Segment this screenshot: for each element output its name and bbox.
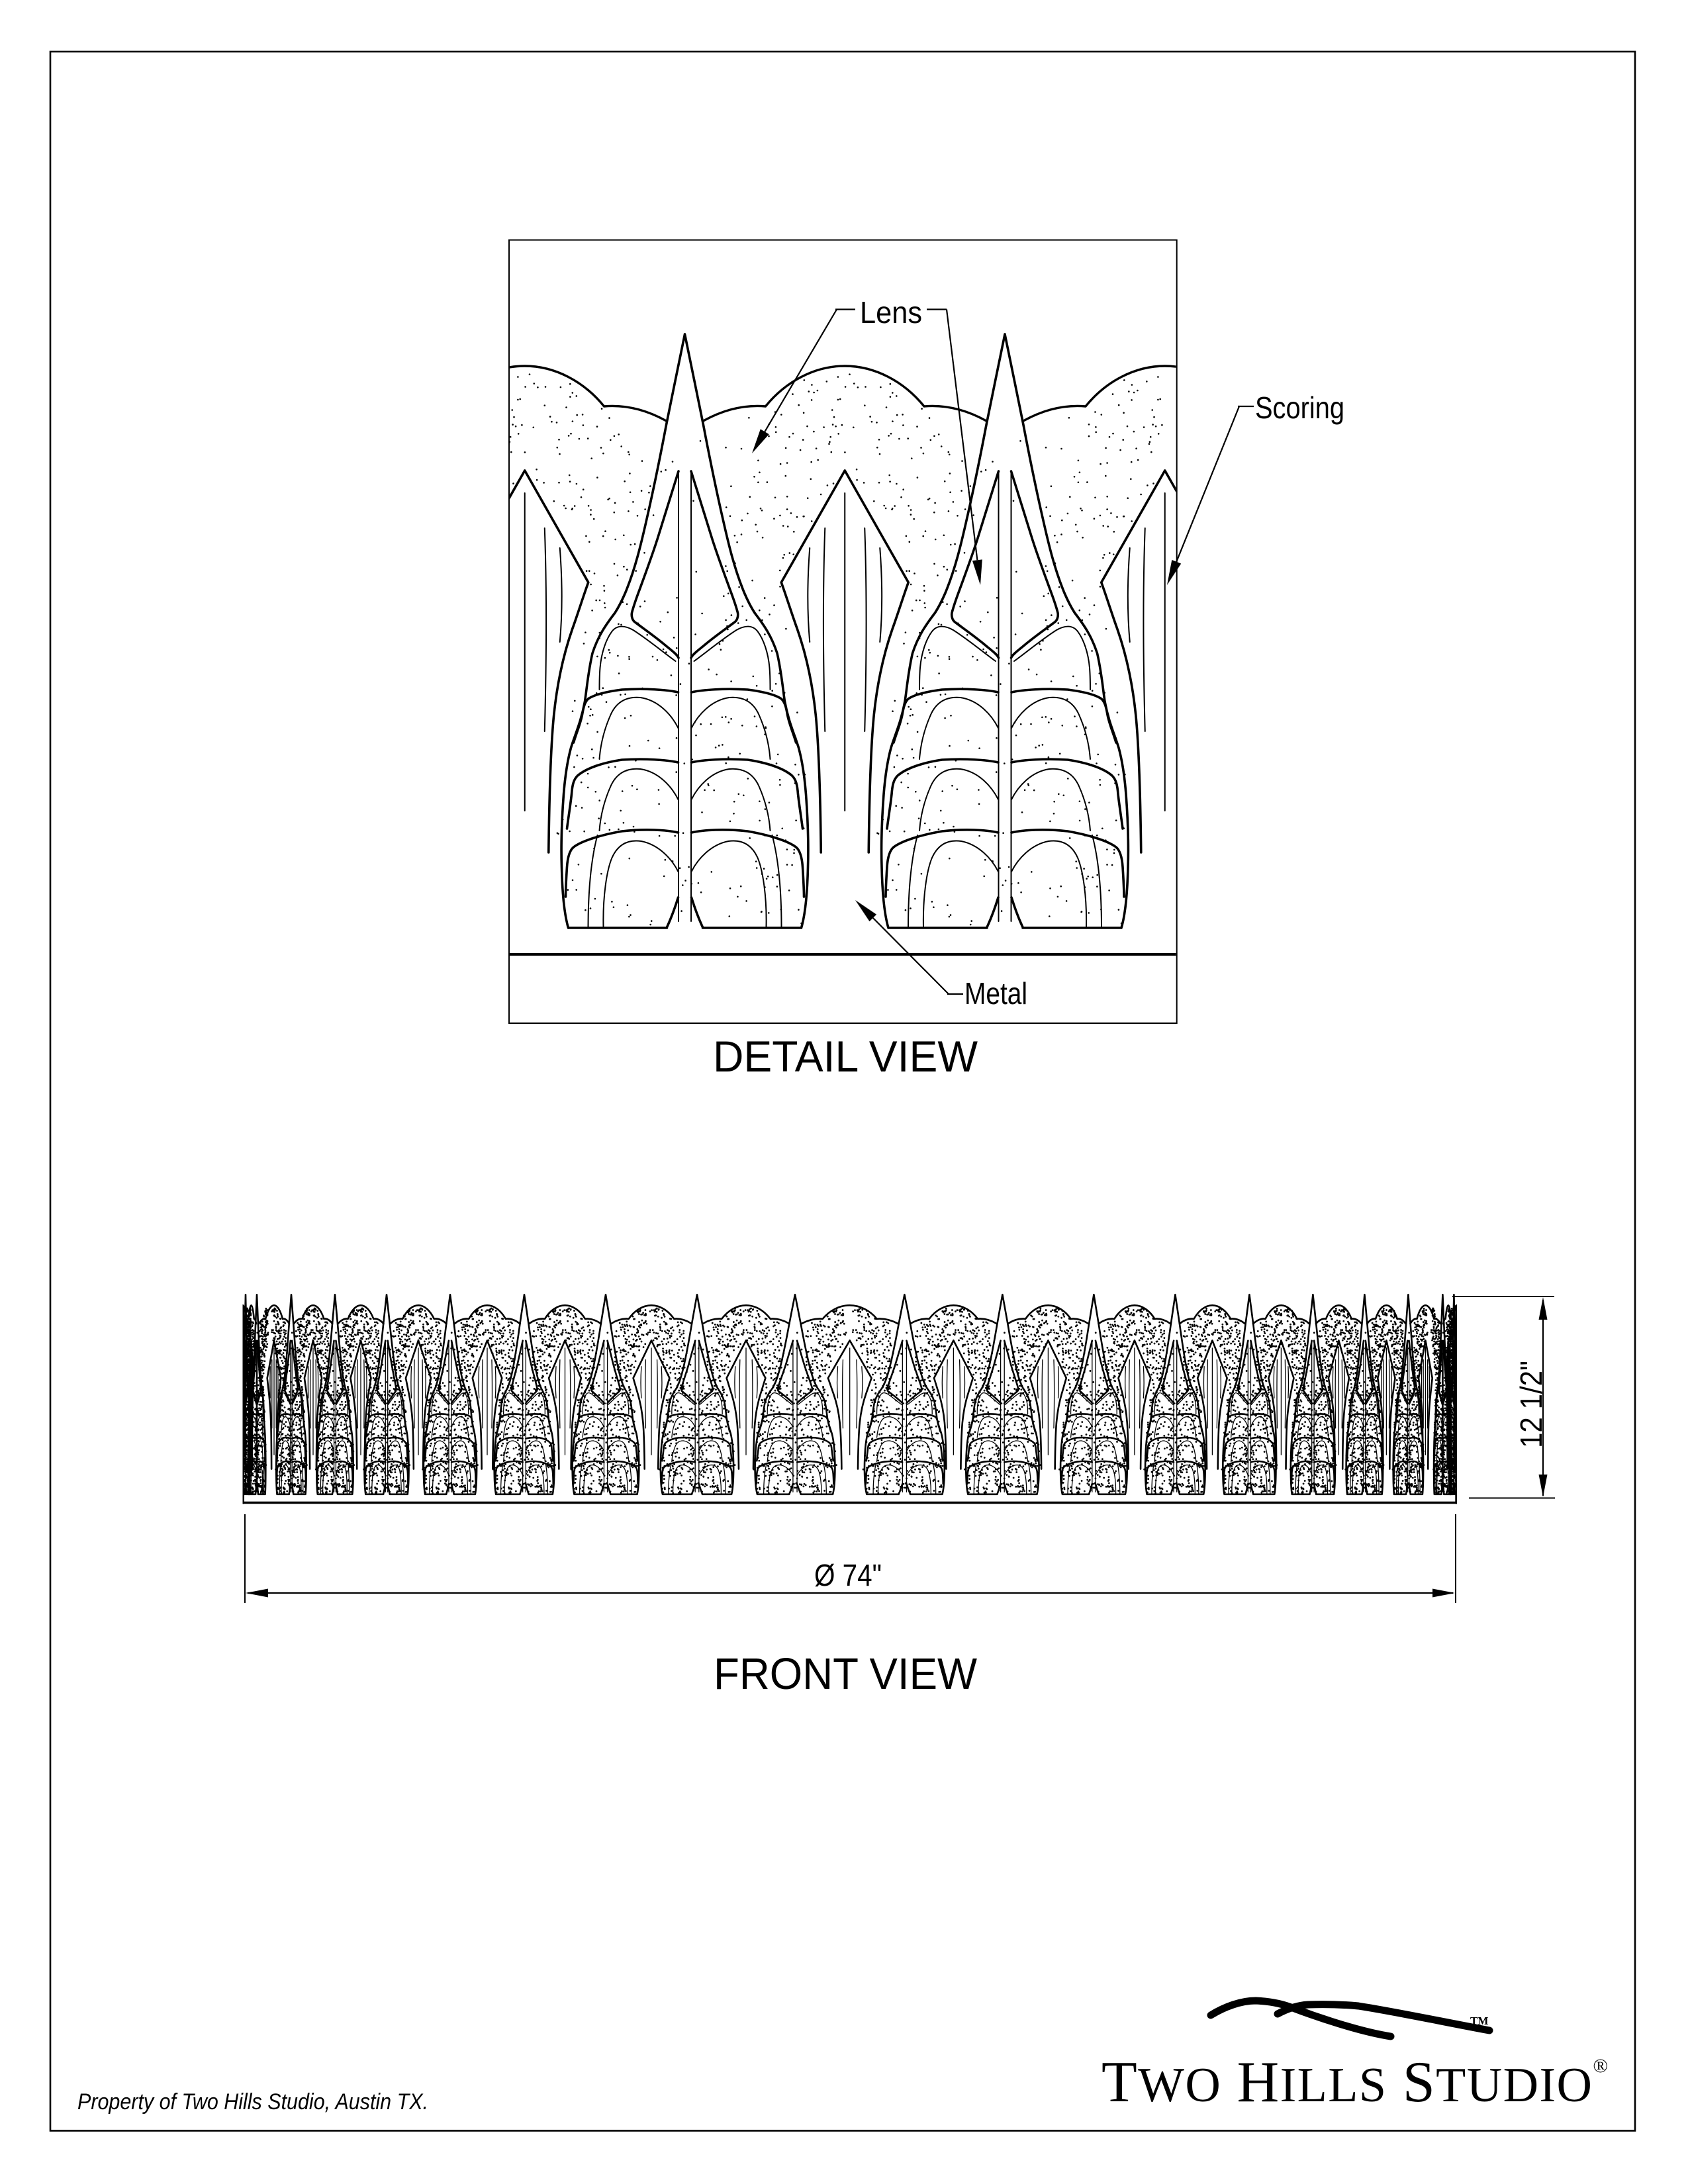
svg-text:DETAIL VIEW: DETAIL VIEW: [713, 1032, 978, 1081]
svg-text:TWO HILLS STUDIO®: TWO HILLS STUDIO®: [1102, 2050, 1609, 2115]
svg-text:12 1/2": 12 1/2": [1514, 1361, 1548, 1448]
svg-text:Ø 74": Ø 74": [814, 1558, 882, 1592]
svg-text:Lens: Lens: [860, 295, 922, 330]
svg-text:Property of Two Hills Studio,: Property of Two Hills Studio, Austin TX.: [77, 2089, 428, 2115]
svg-text:TM: TM: [1470, 2015, 1488, 2027]
svg-text:Scoring: Scoring: [1255, 390, 1344, 425]
svg-text:Metal: Metal: [964, 976, 1027, 1011]
svg-text:FRONT VIEW: FRONT VIEW: [714, 1649, 978, 1699]
